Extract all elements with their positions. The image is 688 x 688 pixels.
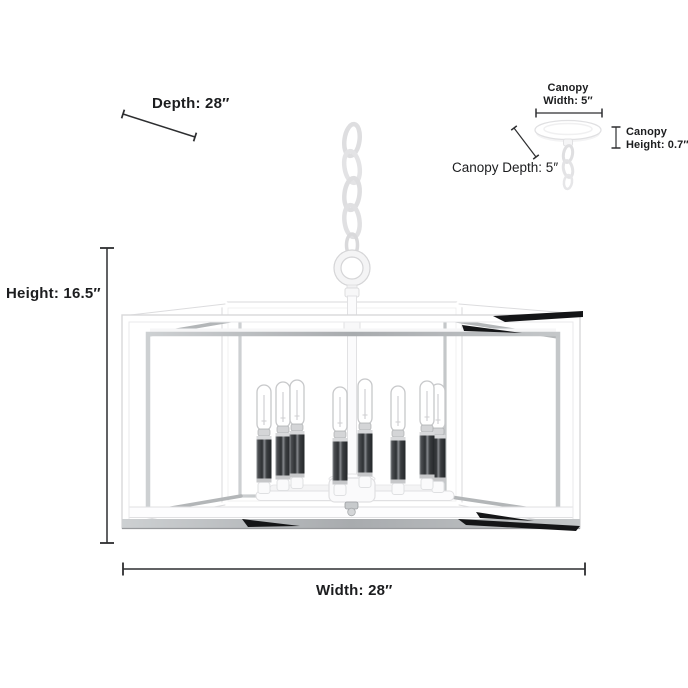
canopy-width-dimension-line [536, 109, 602, 118]
candle-bulb [358, 379, 373, 488]
canopy-height-line1: Canopy [626, 126, 667, 138]
product-dimension-diagram: Depth: 28″ Height: 16.5″ Width: 28″ Cano… [0, 0, 688, 688]
canopy-width-label: CanopyWidth: 5″ [524, 82, 612, 107]
height-dimension-line [100, 248, 114, 543]
depth-dimension-line [122, 110, 197, 142]
candle-bulb [333, 387, 348, 496]
canopy-width-line2: Width: 5″ [543, 95, 592, 107]
candle-bulb [276, 382, 291, 491]
candle-bulb [391, 386, 406, 495]
candle-bulb [290, 380, 305, 489]
canopy-height-line2: Height: 0.7″ [626, 139, 688, 151]
canopy-detail [535, 121, 601, 190]
candle-bulb [420, 381, 435, 490]
ring-finial [334, 250, 370, 297]
depth-label: Depth: 28″ [152, 95, 230, 112]
candle-bulb [257, 385, 272, 494]
canopy-width-line1: Canopy [548, 82, 589, 94]
canopy-height-dimension-line [612, 127, 621, 148]
hanging-chain [342, 123, 362, 256]
width-label: Width: 28″ [316, 582, 393, 599]
height-label: Height: 16.5″ [6, 285, 101, 302]
canopy-depth-label: Canopy Depth: 5″ [452, 160, 558, 175]
canopy-height-label: CanopyHeight: 0.7″ [626, 126, 688, 151]
width-dimension-line [123, 563, 585, 576]
canopy-chain [562, 145, 574, 190]
